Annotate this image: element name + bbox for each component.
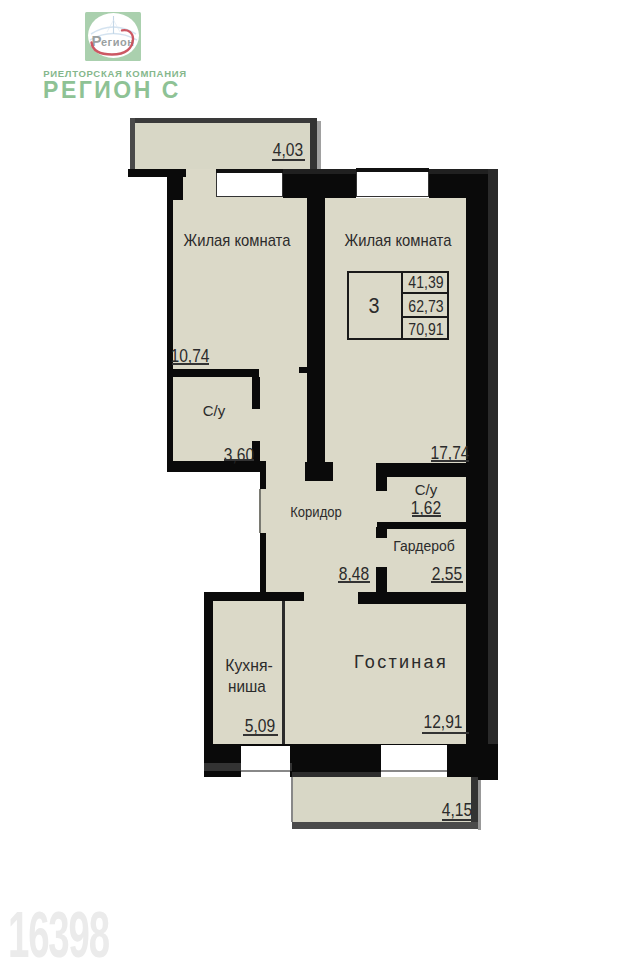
svg-text:егион: егион [101, 36, 134, 48]
